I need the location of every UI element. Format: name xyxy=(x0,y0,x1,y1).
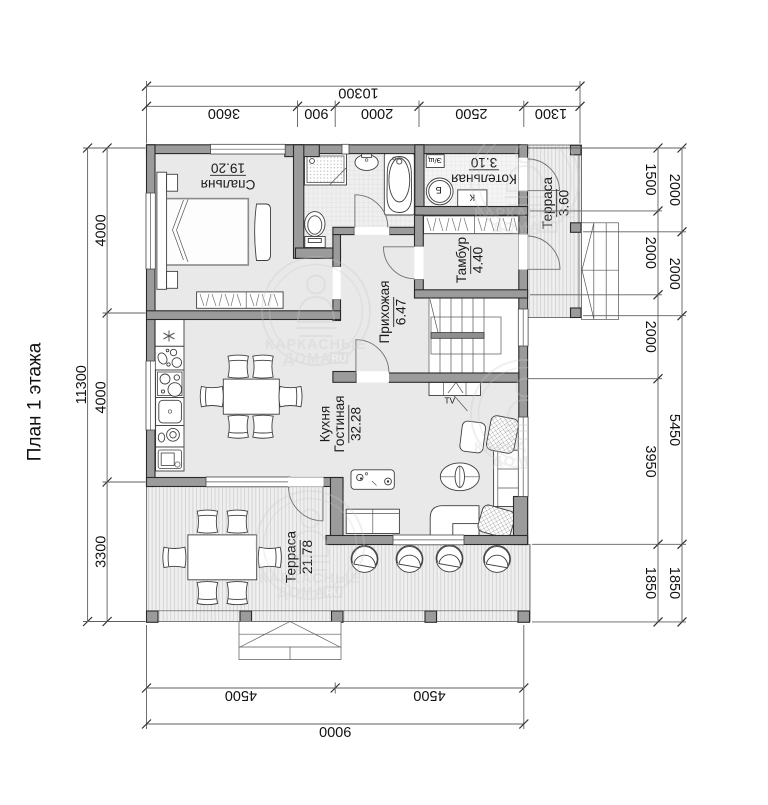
svg-text:900: 900 xyxy=(304,105,328,121)
svg-text:1300: 1300 xyxy=(535,105,567,121)
svg-text:1850: 1850 xyxy=(666,567,682,599)
svg-text:TV: TV xyxy=(444,396,455,406)
svg-text:2000: 2000 xyxy=(361,105,393,121)
svg-text:4000: 4000 xyxy=(93,381,109,413)
svg-text:1500: 1500 xyxy=(642,163,658,195)
svg-text:32.28: 32.28 xyxy=(349,407,364,441)
svg-text:2000: 2000 xyxy=(666,174,682,206)
svg-text:4500: 4500 xyxy=(225,687,257,703)
svg-text:2000: 2000 xyxy=(642,321,658,353)
svg-text:2500: 2500 xyxy=(455,105,487,121)
svg-text:4.40: 4.40 xyxy=(470,246,485,273)
svg-text:5450: 5450 xyxy=(666,414,682,446)
svg-text:4500: 4500 xyxy=(413,687,445,703)
svg-text:1850: 1850 xyxy=(642,567,658,599)
svg-text:Гостиная: Гостиная xyxy=(332,395,347,452)
svg-text:Спальня: Спальня xyxy=(201,177,256,192)
svg-text:4000: 4000 xyxy=(93,214,109,246)
svg-text:Э/щ: Э/щ xyxy=(428,156,442,165)
svg-text:10300: 10300 xyxy=(338,85,378,101)
svg-text:Кухня: Кухня xyxy=(318,406,333,442)
svg-text:3950: 3950 xyxy=(642,445,658,477)
svg-text:Тамбур: Тамбур xyxy=(454,237,469,283)
svg-text:План 1 этажа: План 1 этажа xyxy=(25,342,46,461)
svg-text:3300: 3300 xyxy=(93,536,109,568)
svg-text:19.20: 19.20 xyxy=(211,161,245,176)
svg-text:3600: 3600 xyxy=(208,105,240,121)
svg-text:Б: Б xyxy=(436,184,442,195)
svg-text:11300: 11300 xyxy=(74,365,90,404)
svg-text:Прихожая: Прихожая xyxy=(377,281,392,344)
svg-text:2000: 2000 xyxy=(666,258,682,290)
svg-text:6.47: 6.47 xyxy=(393,299,408,325)
svg-text:9000: 9000 xyxy=(319,723,351,739)
svg-text:2000: 2000 xyxy=(642,237,658,269)
